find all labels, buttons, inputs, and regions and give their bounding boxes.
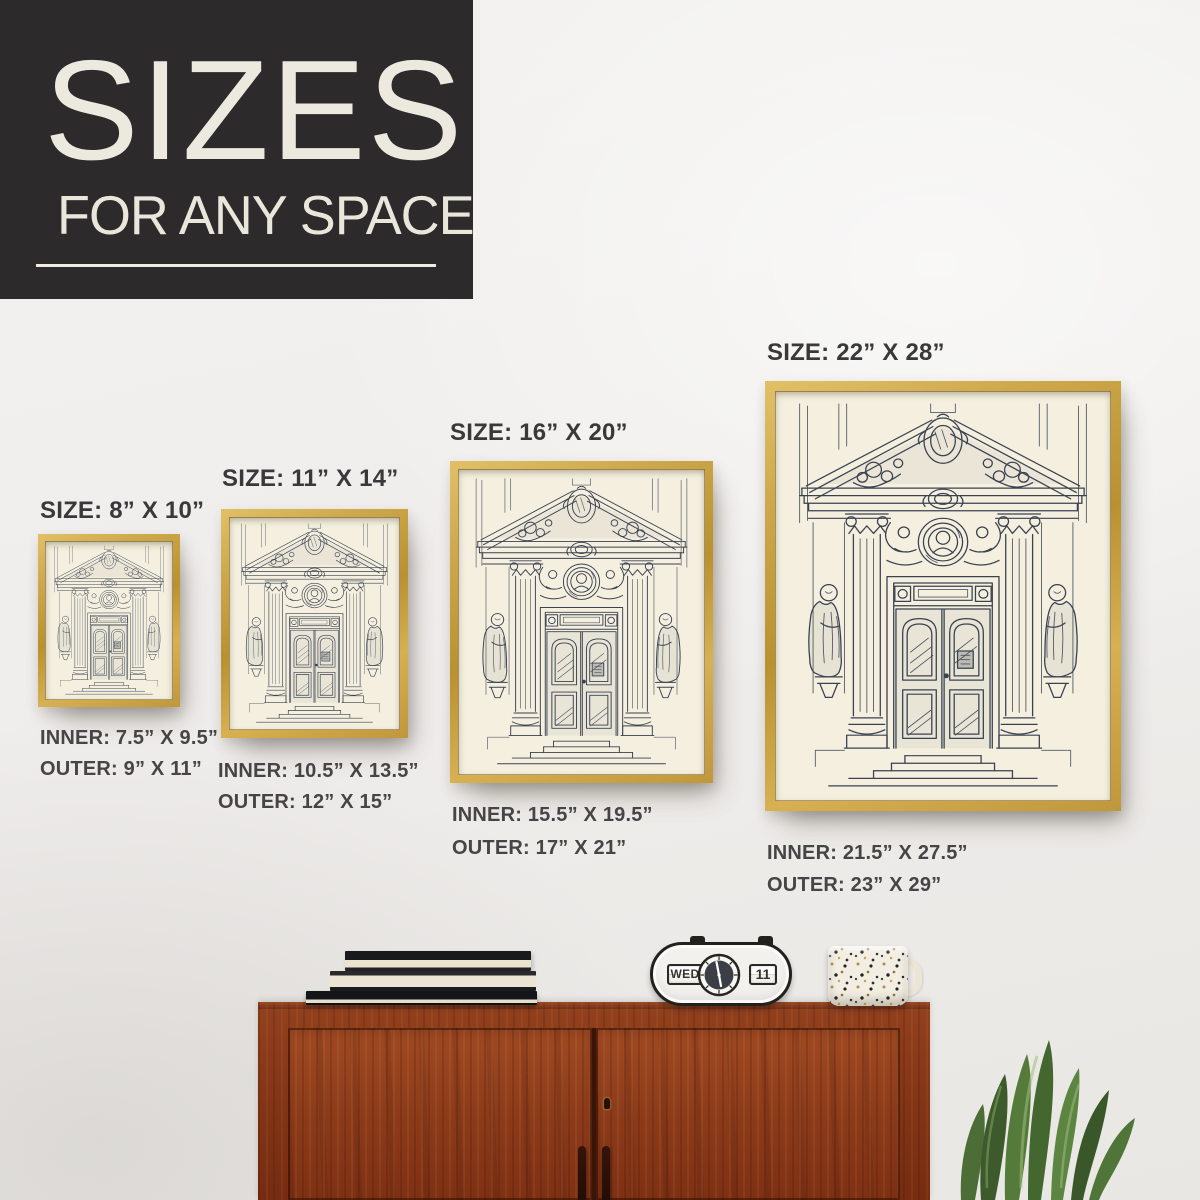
promo-header-box: SIZES FOR ANY SPACE (0, 0, 473, 299)
cabinet-doors (288, 1028, 900, 1200)
promo-subtitle: FOR ANY SPACE (57, 188, 474, 243)
inner-dimension-label: INNER: 7.5” X 9.5” (40, 728, 218, 748)
speckled-mug (828, 946, 908, 1006)
book-middle (330, 971, 536, 991)
mug-body (828, 946, 908, 1006)
book-top (345, 951, 531, 971)
outer-dimension-label: OUTER: 23” X 29” (767, 875, 941, 895)
size-label: SIZE: 16” X 20” (450, 421, 628, 445)
outer-dimension-label: OUTER: 9” X 11” (40, 759, 202, 779)
cabinet-door-seam (592, 1028, 596, 1200)
inner-dimension-label: INNER: 15.5” X 19.5” (452, 805, 653, 825)
artwork-door-sketch (458, 469, 705, 775)
outer-dimension-label: OUTER: 12” X 15” (218, 792, 392, 812)
size-guide-scene: SIZES FOR ANY SPACE SIZE: 8” X 10” INNER… (0, 0, 1200, 1200)
sideboard-cabinet (258, 1002, 930, 1200)
book-bottom (306, 991, 537, 1005)
clock-date-card: 11 (749, 964, 777, 985)
keyhole (604, 1098, 610, 1109)
clock-face (697, 953, 741, 997)
size-label: SIZE: 22” X 28” (767, 341, 945, 365)
size-label: SIZE: 11” X 14” (222, 467, 398, 491)
clock-body: WED 11 (650, 942, 792, 1006)
framed-print-11x14 (221, 509, 408, 738)
door-handle-right (602, 1146, 610, 1200)
size-label: SIZE: 8” X 10” (40, 499, 204, 523)
artwork-door-sketch (229, 517, 400, 730)
snake-plant (933, 1028, 1148, 1200)
framed-print-16x20 (450, 461, 713, 783)
artwork-door-sketch (45, 541, 173, 700)
framed-print-22x28 (765, 381, 1121, 811)
cabinet-door-left (288, 1028, 592, 1200)
flip-clock: WED 11 (650, 934, 792, 1006)
inner-dimension-label: INNER: 10.5” X 13.5” (218, 761, 419, 781)
artwork-door-sketch (775, 391, 1111, 801)
door-handle-left (578, 1146, 586, 1200)
cabinet-door-right (596, 1028, 900, 1200)
promo-divider (36, 264, 436, 267)
framed-print-8x10 (38, 534, 180, 707)
outer-dimension-label: OUTER: 17” X 21” (452, 838, 626, 858)
inner-dimension-label: INNER: 21.5” X 27.5” (767, 843, 968, 863)
promo-title: SIZES (44, 40, 464, 182)
